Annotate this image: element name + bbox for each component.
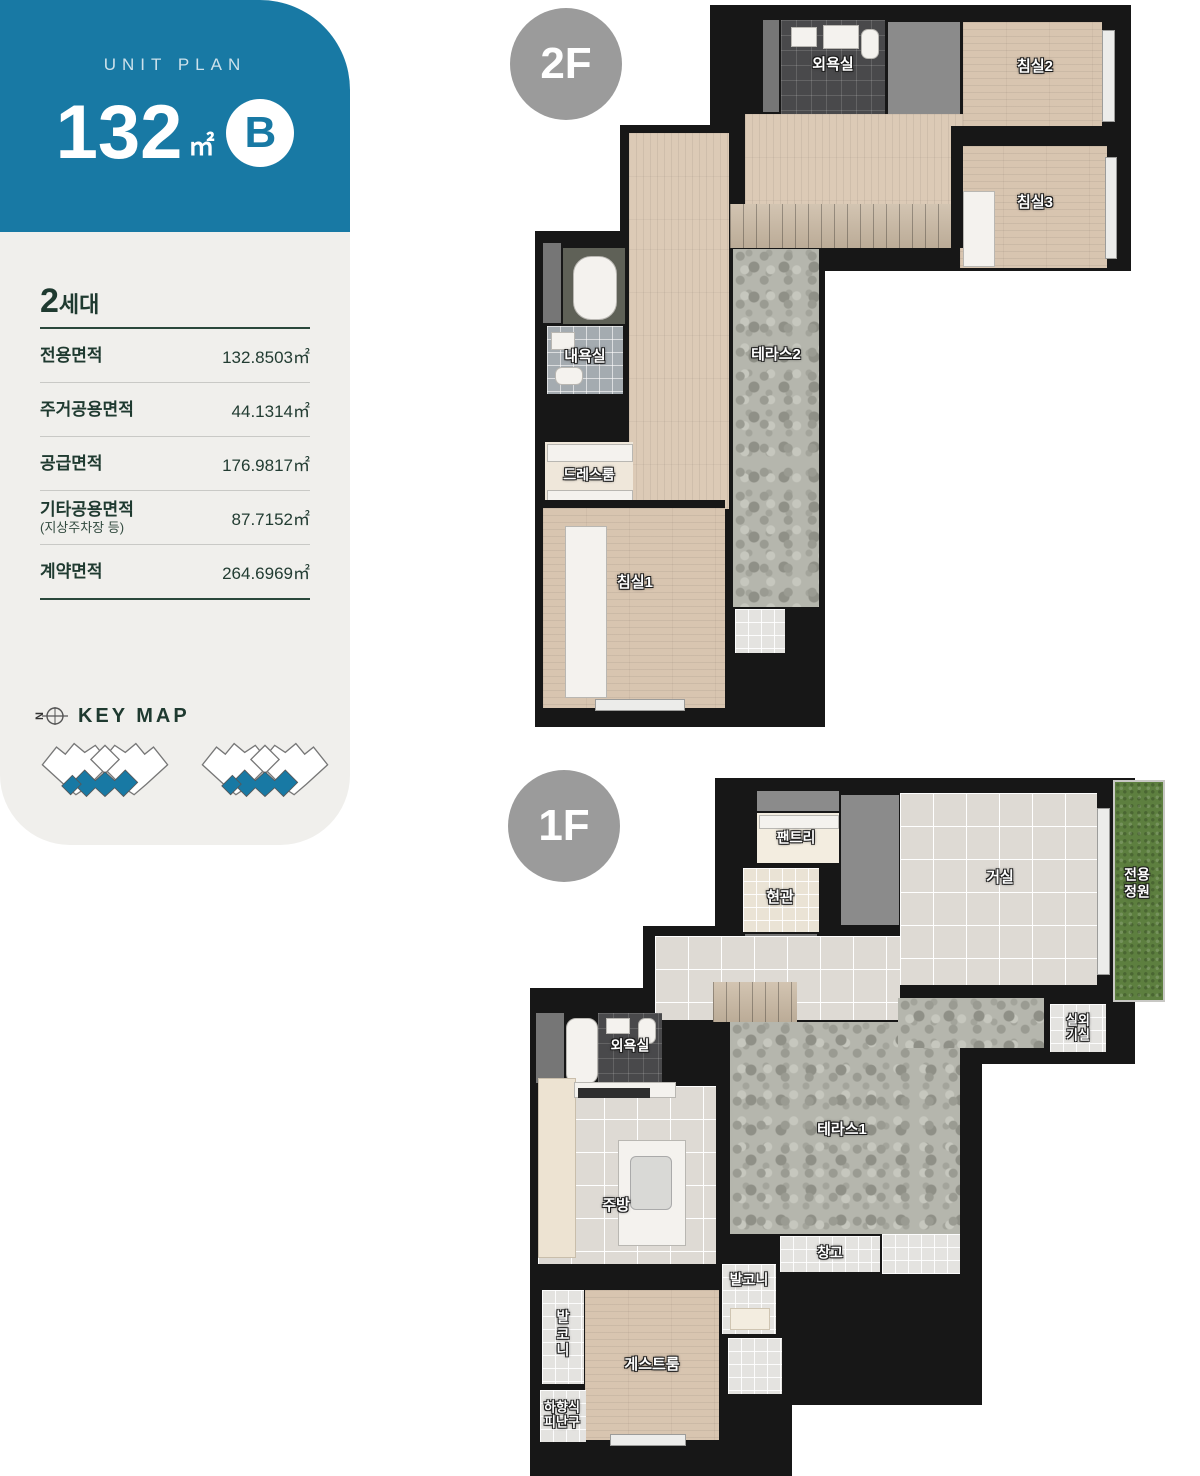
room-balcony-right-label: 발코니 bbox=[730, 1272, 769, 1289]
room-bed2-label: 침실2 bbox=[1017, 58, 1053, 76]
room-balcony-left-label: 발 코 니 bbox=[557, 1309, 570, 1359]
row-label: 주거공용면적 bbox=[40, 399, 134, 420]
table-row: 기타공용면적(지상주차장 등) 87.7152㎡ bbox=[40, 490, 310, 544]
room-guest-label: 게스트룸 bbox=[624, 1356, 679, 1374]
row-value: 44.1314㎡ bbox=[232, 397, 310, 422]
keymap-title: KEY MAP bbox=[78, 705, 190, 728]
cooktop bbox=[578, 1088, 650, 1098]
room-entry-label: 현관 bbox=[766, 889, 794, 907]
room-bed1-label: 침실1 bbox=[617, 574, 653, 592]
keymap-thumbnails bbox=[30, 733, 340, 830]
closet bbox=[565, 526, 607, 698]
balcony-fixture bbox=[730, 1308, 770, 1330]
unit-area-unit: ㎡ bbox=[188, 126, 214, 163]
row-label: 기타공용면적(지상주차장 등) bbox=[40, 499, 134, 537]
row-value: 87.7152㎡ bbox=[232, 505, 310, 530]
floor1-plan: 팬트리 현관 거실 전용 정원 실외 기실 외욕실 테라스1 주방 창고 발코니… bbox=[530, 778, 1175, 1476]
row-label: 공급면적 bbox=[40, 453, 103, 474]
closet bbox=[763, 20, 779, 112]
room-bath-out1-label: 외욕실 bbox=[611, 1038, 650, 1055]
window bbox=[595, 699, 685, 711]
wardrobe bbox=[547, 444, 633, 462]
wall bbox=[543, 500, 725, 508]
table-row: 전용면적 132.8503㎡ bbox=[40, 329, 310, 382]
row-sublabel: (지상주차장 등) bbox=[40, 520, 134, 536]
kitchen-counter bbox=[538, 1078, 576, 1258]
household-suffix: 세대 bbox=[59, 292, 99, 317]
table-row: 계약면적 264.6969㎡ bbox=[40, 544, 310, 598]
window bbox=[1102, 30, 1115, 122]
bathtub-fixture bbox=[573, 256, 617, 320]
shower-fixture bbox=[791, 27, 817, 47]
toilet-fixture bbox=[861, 29, 879, 59]
window bbox=[1105, 157, 1117, 259]
terrace-arm bbox=[898, 998, 1044, 1048]
row-label: 계약면적 bbox=[40, 561, 103, 582]
room-garden-label: 전용 정원 bbox=[1124, 866, 1150, 899]
hallway bbox=[629, 249, 729, 509]
unit-type-card: UNIT PLAN 132 ㎡ B bbox=[0, 0, 350, 232]
hallway bbox=[629, 133, 729, 249]
window bbox=[610, 1434, 686, 1446]
room-terrace2-label: 테라스2 bbox=[751, 346, 801, 364]
room-bed3-label: 침실3 bbox=[1017, 194, 1053, 212]
room-pantry-label: 팬트리 bbox=[777, 830, 816, 847]
room-dress-label: 드레스룸 bbox=[563, 467, 615, 484]
closet bbox=[543, 243, 561, 323]
room-storage-label: 창고 bbox=[817, 1245, 843, 1262]
cabinet bbox=[759, 815, 839, 829]
row-value: 176.9817㎡ bbox=[222, 451, 310, 476]
toilet-fixture bbox=[555, 367, 583, 385]
room-escape-label: 하향식 피난구 bbox=[544, 1400, 580, 1431]
compass-icon: N bbox=[36, 703, 68, 729]
keymap-building-right bbox=[190, 733, 340, 830]
room-living bbox=[900, 793, 1097, 985]
unit-plan-page: UNIT PLAN 132 ㎡ B 2세대 전용면적 132.8503㎡ 주거공… bbox=[0, 0, 1200, 1476]
room-kitchen-label: 주방 bbox=[602, 1197, 630, 1215]
unit-area-number: 132 bbox=[56, 95, 183, 171]
sink-fixture bbox=[823, 25, 859, 49]
keymap-header: N KEY MAP bbox=[36, 703, 190, 729]
room-bath-in-label: 내욕실 bbox=[564, 348, 605, 366]
keymap-building-left bbox=[30, 733, 180, 830]
stairs bbox=[730, 204, 960, 248]
area-table: 전용면적 132.8503㎡ 주거공용면적 44.1314㎡ 공급면적 176.… bbox=[40, 327, 310, 600]
household-number: 2 bbox=[40, 282, 59, 320]
unit-area-line: 132 ㎡ B bbox=[0, 95, 350, 171]
balcony bbox=[728, 1338, 782, 1394]
wall bbox=[951, 126, 1113, 146]
closet bbox=[536, 1013, 564, 1083]
row-value: 264.6969㎡ bbox=[222, 559, 310, 584]
hallway bbox=[745, 114, 963, 209]
info-panel: UNIT PLAN 132 ㎡ B 2세대 전용면적 132.8503㎡ 주거공… bbox=[0, 0, 350, 845]
closet bbox=[888, 22, 960, 114]
table-row: 주거공용면적 44.1314㎡ bbox=[40, 382, 310, 436]
table-row: 공급면적 176.9817㎡ bbox=[40, 436, 310, 490]
room-terrace2 bbox=[733, 249, 819, 607]
bathtub-fixture bbox=[566, 1018, 598, 1084]
wall bbox=[951, 126, 963, 248]
sink-fixture bbox=[630, 1156, 672, 1210]
closet bbox=[963, 191, 995, 267]
stairs bbox=[713, 982, 797, 1022]
compass-north-letter: N bbox=[34, 712, 46, 720]
row-label: 전용면적 bbox=[40, 345, 103, 366]
unit-plan-eyebrow: UNIT PLAN bbox=[0, 55, 350, 75]
sink-fixture bbox=[606, 1018, 630, 1034]
room-outdoor-unit-label: 실외 기실 bbox=[1066, 1013, 1090, 1044]
household-count: 2세대 bbox=[40, 282, 99, 321]
unit-type-badge: B bbox=[226, 99, 294, 167]
closet bbox=[757, 791, 839, 811]
room-living-label: 거실 bbox=[986, 869, 1014, 887]
floor2-plan: 외욕실 침실2 침실3 내욕실 테라스2 드레스룸 침실1 bbox=[535, 5, 1131, 727]
storage-hatch bbox=[882, 1234, 960, 1274]
room-terrace1-label: 테라스1 bbox=[817, 1121, 867, 1139]
balcony bbox=[735, 609, 785, 653]
row-value: 132.8503㎡ bbox=[222, 343, 310, 368]
room-bath-out-label: 외욕실 bbox=[812, 56, 853, 74]
window bbox=[1097, 808, 1110, 975]
closet bbox=[841, 795, 899, 925]
